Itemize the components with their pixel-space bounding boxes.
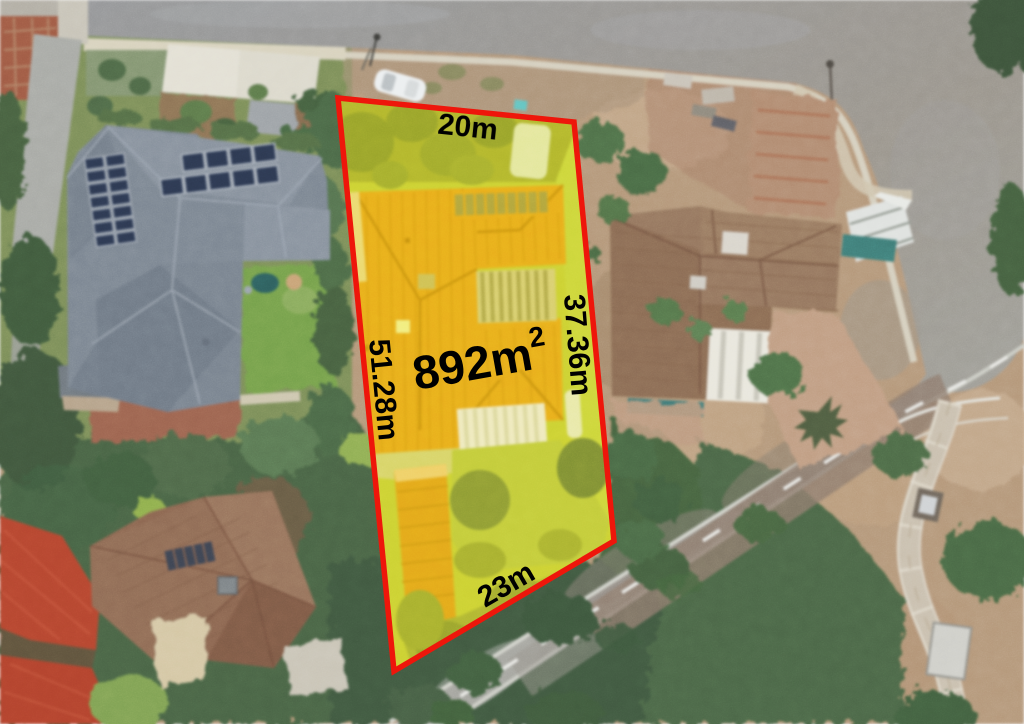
svg-text:20m: 20m — [436, 108, 499, 147]
